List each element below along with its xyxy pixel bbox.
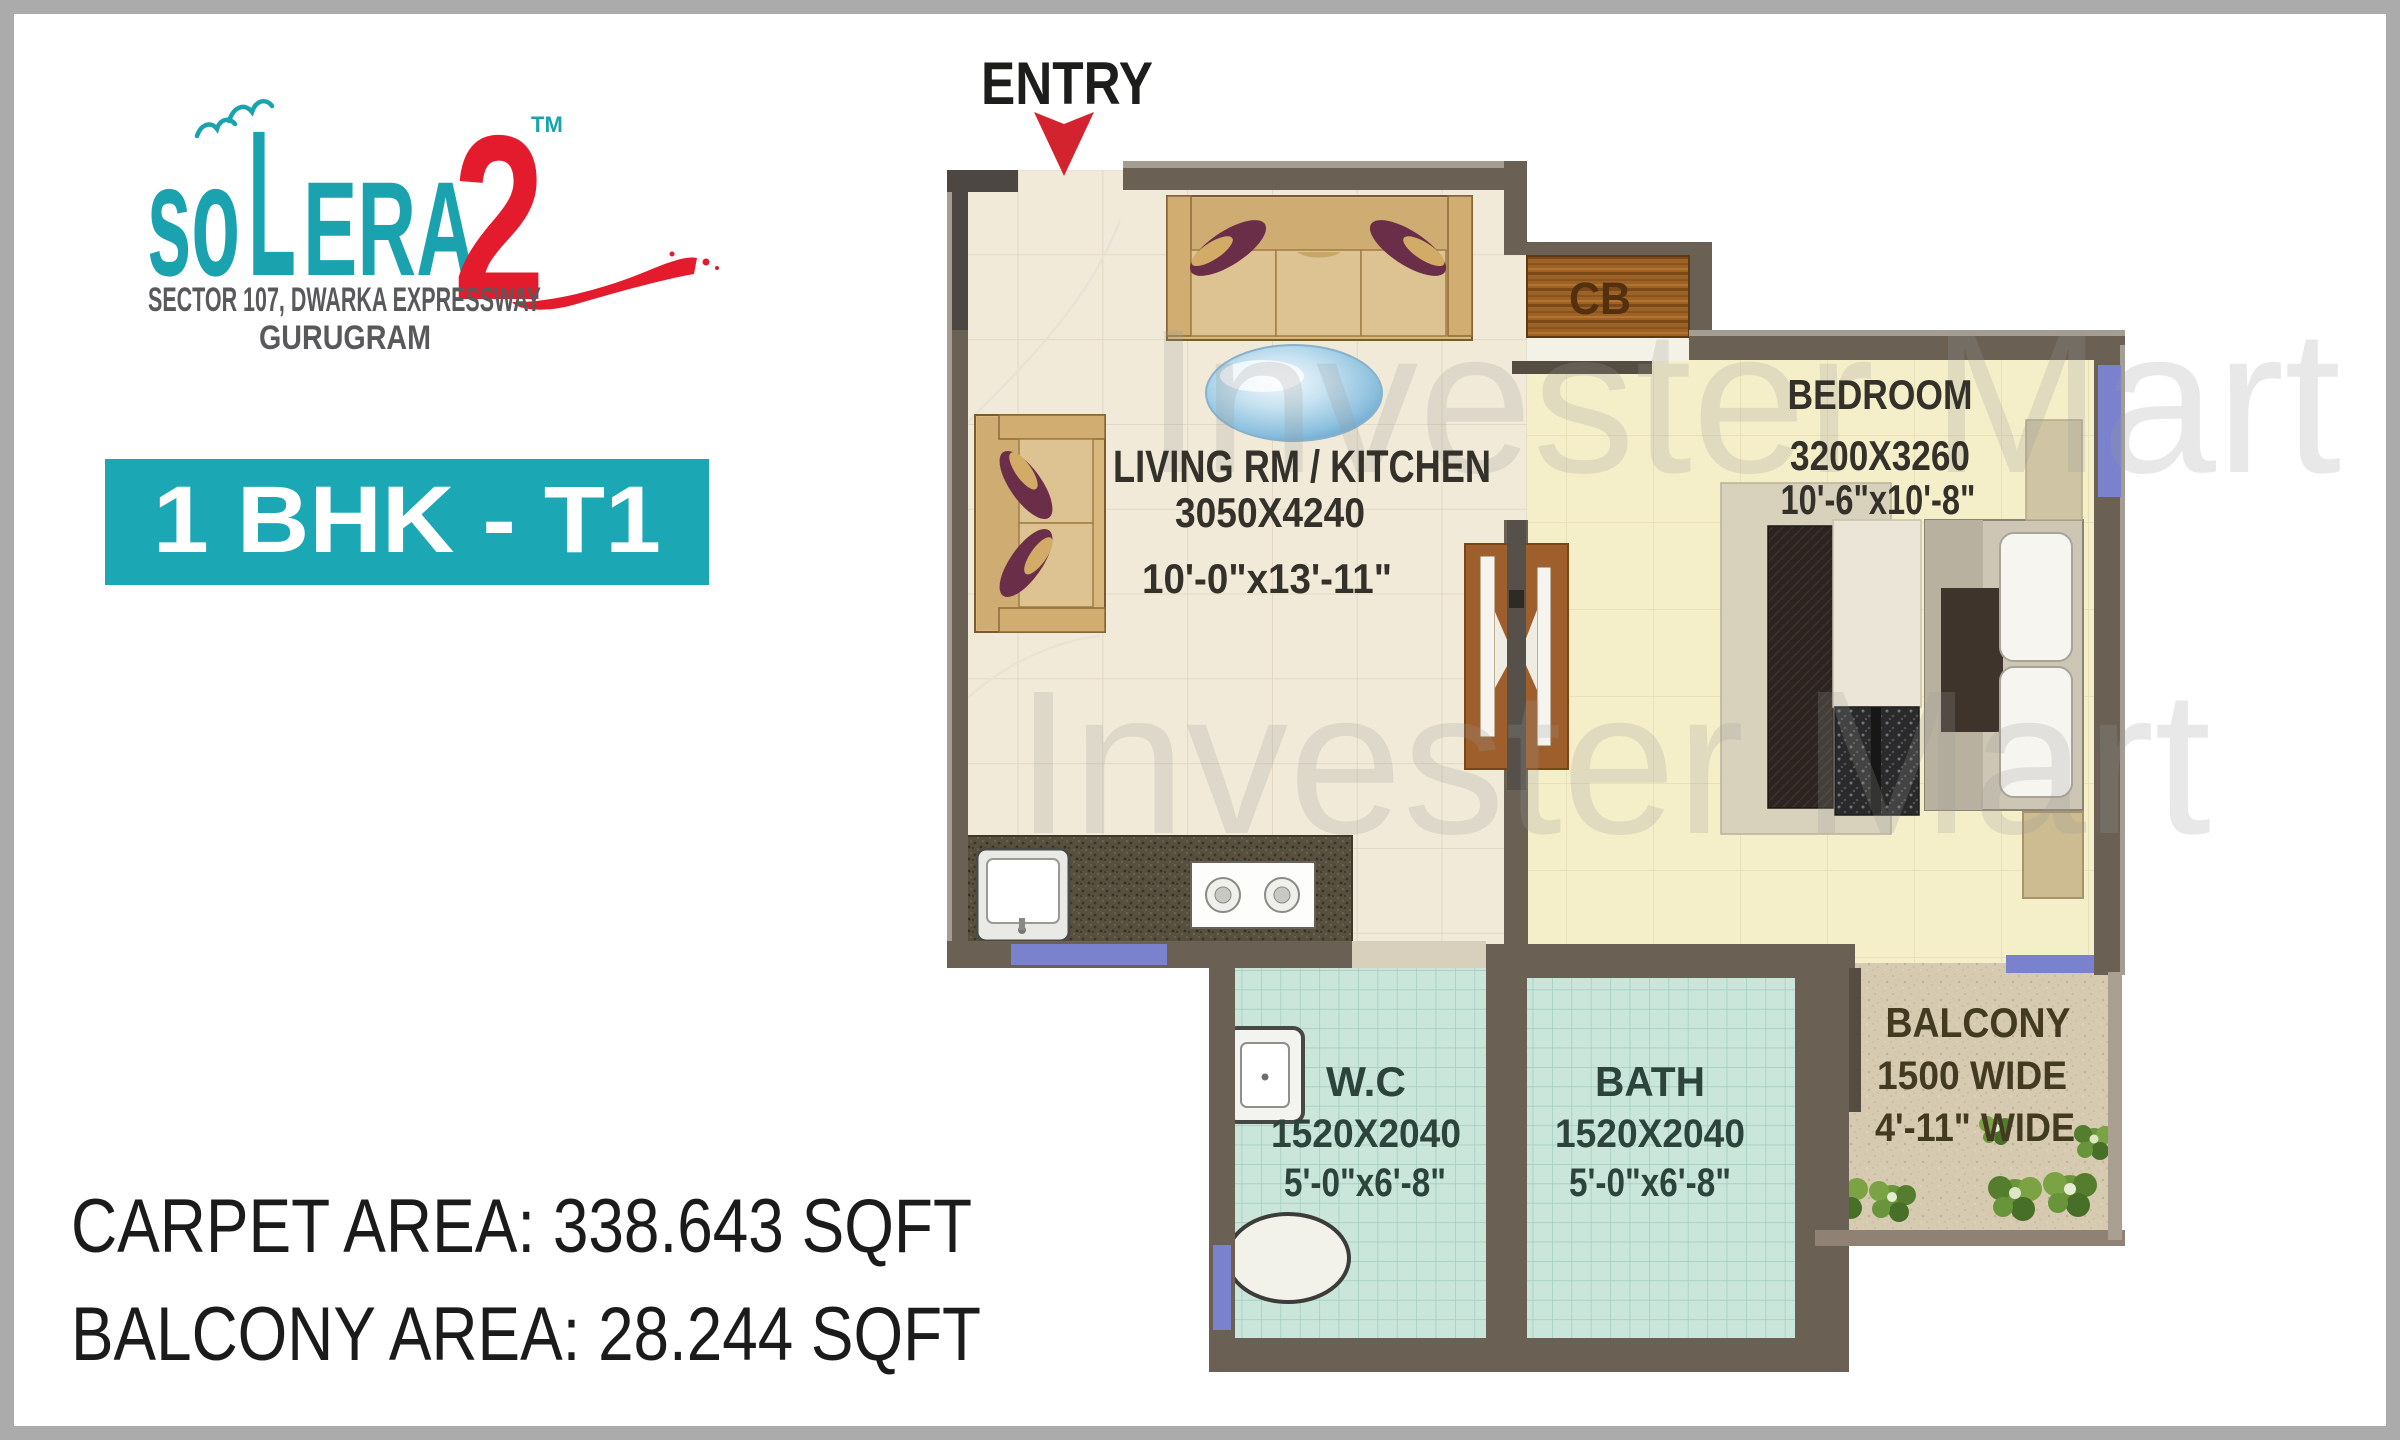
svg-text:5'-0"x6'-8": 5'-0"x6'-8"	[1569, 1161, 1731, 1205]
svg-text:ENTRY: ENTRY	[981, 50, 1153, 117]
svg-text:SECTOR 107, DWARKA EXPRESSWAY: SECTOR 107, DWARKA EXPRESSWAY	[148, 281, 541, 319]
svg-text:TM: TM	[531, 112, 563, 137]
svg-text:3200X3260: 3200X3260	[1790, 432, 1970, 479]
svg-text:GURUGRAM: GURUGRAM	[259, 319, 431, 357]
svg-text:LIVING RM / KITCHEN: LIVING RM / KITCHEN	[1113, 441, 1491, 492]
svg-text:BALCONY AREA: 28.244 SQFT: BALCONY AREA: 28.244 SQFT	[71, 1292, 981, 1377]
svg-text:CARPET AREA: 338.643 SQFT: CARPET AREA: 338.643 SQFT	[71, 1184, 972, 1269]
svg-text:1520X2040: 1520X2040	[1555, 1112, 1745, 1156]
svg-text:10'-6"x10'-8": 10'-6"x10'-8"	[1781, 476, 1976, 523]
svg-text:3050X4240: 3050X4240	[1175, 489, 1365, 536]
svg-text:BATH: BATH	[1595, 1058, 1705, 1105]
svg-text:5'-0"x6'-8": 5'-0"x6'-8"	[1284, 1161, 1446, 1205]
svg-text:Invester Mart: Invester Mart	[1015, 648, 2211, 877]
svg-text:4'-11" WIDE: 4'-11" WIDE	[1875, 1106, 2075, 1150]
svg-text:W.C: W.C	[1326, 1058, 1406, 1105]
svg-text:CB: CB	[1569, 273, 1631, 324]
svg-text:BEDROOM: BEDROOM	[1788, 371, 1973, 418]
svg-text:1500 WIDE: 1500 WIDE	[1877, 1054, 2067, 1098]
svg-text:BALCONY: BALCONY	[1886, 999, 2071, 1046]
svg-text:1520X2040: 1520X2040	[1271, 1112, 1461, 1156]
svg-text:10'-0"x13'-11": 10'-0"x13'-11"	[1142, 555, 1392, 602]
svg-text:1 BHK - T1: 1 BHK - T1	[153, 467, 661, 573]
